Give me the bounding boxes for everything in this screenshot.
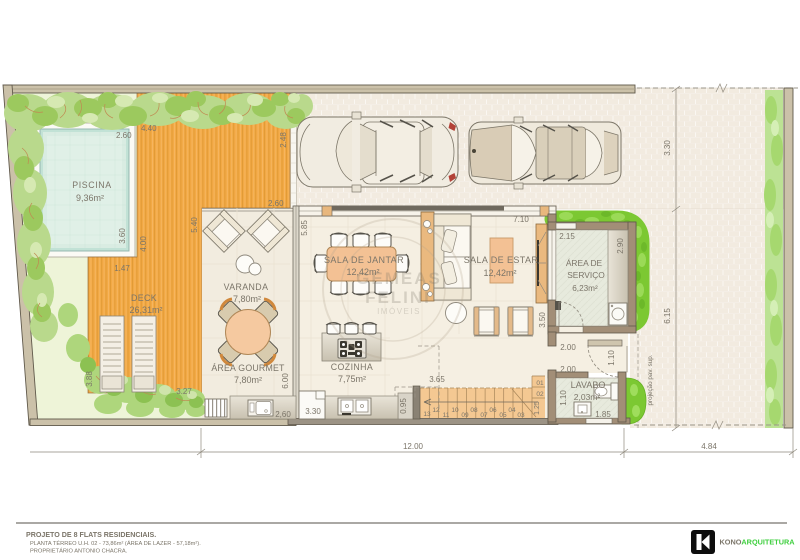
svg-text:9,36m²: 9,36m² [76,193,104,203]
svg-text:SALA DE ESTAR: SALA DE ESTAR [464,255,539,265]
svg-text:6.15: 6.15 [663,308,672,324]
svg-text:4.40: 4.40 [141,124,157,133]
svg-text:08: 08 [470,407,478,414]
svg-text:03: 03 [517,412,525,419]
svg-text:1.85: 1.85 [595,410,611,419]
svg-text:2.48: 2.48 [279,132,288,148]
svg-text:09: 09 [461,412,469,419]
svg-text:11: 11 [443,412,450,419]
svg-text:LAVABO: LAVABO [571,380,606,390]
svg-text:12,42m²: 12,42m² [483,268,516,278]
svg-text:ÁREA GOURMET: ÁREA GOURMET [211,363,285,373]
svg-text:2,60: 2,60 [275,410,291,419]
svg-text:7,80m²: 7,80m² [233,294,261,304]
svg-text:1.47: 1.47 [114,264,130,273]
svg-text:1.10: 1.10 [607,350,616,366]
svg-text:3.27: 3.27 [176,387,192,396]
svg-text:5.40: 5.40 [190,217,199,233]
svg-text:SERVIÇO: SERVIÇO [567,270,605,280]
svg-text:2.60: 2.60 [268,199,284,208]
svg-text:12.00: 12.00 [403,442,424,451]
svg-text:ÁREA DE: ÁREA DE [566,258,603,268]
svg-text:IMÓVEIS: IMÓVEIS [377,307,421,316]
svg-text:PROJETO DE 8 FLATS RESIDENCIAI: PROJETO DE 8 FLATS RESIDENCIAIS. [26,531,156,539]
svg-text:PROPRIETÁRIO ANTONIO CHACRA.: PROPRIETÁRIO ANTONIO CHACRA. [30,548,128,555]
svg-text:PISCINA: PISCINA [72,180,111,190]
svg-text:12,42m²: 12,42m² [346,267,379,277]
svg-text:4.00: 4.00 [139,236,148,252]
svg-text:7,80m²: 7,80m² [234,375,262,385]
svg-text:01: 01 [536,380,544,387]
svg-text:2,03m²: 2,03m² [574,392,601,402]
svg-text:2.00: 2.00 [560,343,576,352]
svg-text:VARANDA: VARANDA [224,282,269,292]
svg-text:13: 13 [423,411,431,418]
svg-text:05: 05 [499,412,507,419]
svg-text:3.60: 3.60 [118,228,127,244]
svg-text:3.88: 3.88 [85,371,94,387]
svg-text:6,23m²: 6,23m² [572,284,598,293]
svg-text:3.65: 3.65 [429,375,445,384]
svg-text:1.25: 1.25 [534,401,541,415]
svg-text:PLANTA TÉRREO U.H. 02 - 73,86m: PLANTA TÉRREO U.H. 02 - 73,86m² (ÁREA DE… [30,540,201,547]
svg-text:3.30: 3.30 [305,407,321,416]
svg-text:10: 10 [451,407,459,414]
svg-text:COZINHA: COZINHA [331,362,373,372]
svg-text:5.85: 5.85 [300,220,309,236]
svg-text:02: 02 [536,391,544,398]
svg-text:projeção pav. sup.: projeção pav. sup. [647,354,654,405]
svg-text:DECK: DECK [131,293,157,303]
svg-text:07: 07 [480,412,488,419]
svg-text:KONOARQUITETURA: KONOARQUITETURA [720,538,796,547]
svg-text:04: 04 [508,407,516,414]
svg-text:2.15: 2.15 [559,232,575,241]
svg-text:0.95: 0.95 [399,398,408,414]
svg-text:7.10: 7.10 [513,215,529,224]
svg-text:26,31m²: 26,31m² [129,305,162,315]
svg-text:3.50: 3.50 [538,312,547,328]
svg-text:06: 06 [489,407,497,414]
svg-text:2.00: 2.00 [560,365,576,374]
svg-text:7,75m²: 7,75m² [338,374,366,384]
svg-text:3.30: 3.30 [663,140,672,156]
svg-text:4.84: 4.84 [701,442,717,451]
svg-text:2.60: 2.60 [116,131,132,140]
svg-text:FELINI: FELINI [365,288,431,307]
svg-text:6.00: 6.00 [281,373,290,389]
svg-text:1.10: 1.10 [559,390,568,406]
svg-text:SALA DE JANTAR: SALA DE JANTAR [324,255,404,265]
svg-text:2.90: 2.90 [616,238,625,254]
